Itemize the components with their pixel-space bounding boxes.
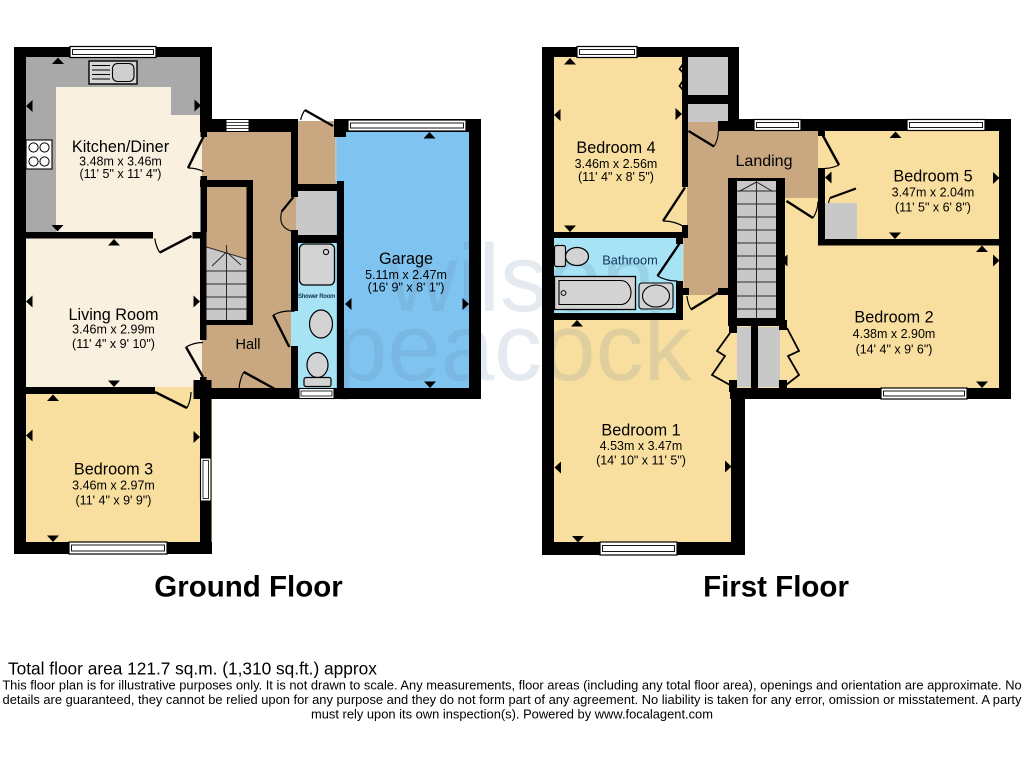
svg-text:Bathroom: Bathroom (602, 253, 657, 268)
svg-text:Bedroom 3: Bedroom 3 (74, 461, 153, 479)
svg-text:Garage: Garage (379, 250, 433, 268)
svg-text:This floor plan is for illustr: This floor plan is for illustrative purp… (2, 678, 1021, 693)
svg-text:Bedroom 1: Bedroom 1 (601, 422, 680, 440)
svg-text:Bedroom 4: Bedroom 4 (576, 139, 655, 157)
svg-text:(11' 5" x 6' 8"): (11' 5" x 6' 8") (895, 201, 971, 215)
svg-text:(16' 9" x 8' 1"): (16' 9" x 8' 1") (368, 281, 445, 295)
svg-text:3.46m x 2.56m: 3.46m x 2.56m (575, 157, 658, 171)
svg-text:Total floor area 121.7 sq.m. (: Total floor area 121.7 sq.m. (1,310 sq.f… (8, 659, 377, 679)
svg-text:(11' 4" x 8' 5"): (11' 4" x 8' 5") (578, 170, 654, 184)
svg-text:Bedroom 5: Bedroom 5 (893, 168, 972, 186)
svg-text:Hall: Hall (236, 337, 261, 353)
svg-text:(11' 5" x 11' 4"): (11' 5" x 11' 4") (80, 167, 162, 181)
svg-text:Living Room: Living Room (69, 306, 159, 324)
svg-text:3.46m x 2.97m: 3.46m x 2.97m (72, 479, 155, 493)
svg-text:First Floor: First Floor (703, 571, 849, 604)
svg-text:4.53m x 3.47m: 4.53m x 3.47m (600, 439, 683, 453)
svg-text:must rely upon its own inspect: must rely upon its own inspection(s). Po… (311, 707, 713, 722)
svg-text:details are guaranteed, they c: details are guaranteed, they cannot be r… (3, 692, 1022, 707)
svg-text:Bedroom 2: Bedroom 2 (854, 309, 933, 327)
svg-text:(11' 4" x 9' 9"): (11' 4" x 9' 9") (76, 494, 152, 508)
svg-text:3.46m x 2.99m: 3.46m x 2.99m (72, 323, 155, 337)
svg-text:(14' 10" x 11' 5"): (14' 10" x 11' 5") (596, 454, 686, 468)
svg-text:peacock: peacock (334, 294, 693, 401)
svg-text:Landing: Landing (736, 153, 793, 170)
svg-text:3.47m x 2.04m: 3.47m x 2.04m (892, 186, 975, 200)
svg-text:Ground Floor: Ground Floor (154, 571, 343, 604)
svg-text:(14' 4" x 9' 6"): (14' 4" x 9' 6") (856, 343, 933, 357)
svg-text:Shower Room: Shower Room (298, 294, 335, 300)
svg-text:Kitchen/Diner: Kitchen/Diner (72, 138, 170, 156)
svg-text:4.38m x 2.90m: 4.38m x 2.90m (853, 327, 936, 341)
svg-text:(11' 4" x 9' 10"): (11' 4" x 9' 10") (72, 337, 155, 351)
